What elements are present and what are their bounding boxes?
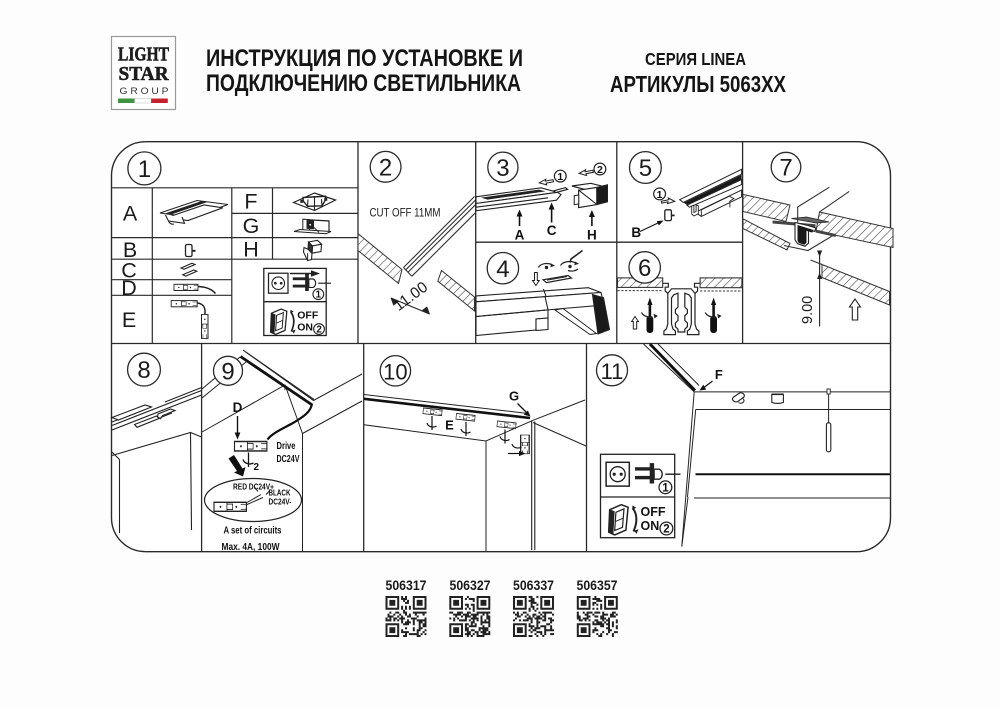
svg-text:6: 6 <box>638 255 651 282</box>
svg-text:F: F <box>244 190 257 214</box>
svg-text:G R O U P: G R O U P <box>120 86 169 97</box>
svg-text:1: 1 <box>557 171 563 183</box>
svg-text:DC24V-: DC24V- <box>269 497 292 507</box>
svg-text:4: 4 <box>496 256 509 283</box>
svg-text:CUT OFF 11MM: CUT OFF 11MM <box>370 206 441 220</box>
svg-text:A: A <box>515 228 525 243</box>
svg-text:G: G <box>509 389 519 404</box>
svg-text:ПОДКЛЮЧЕНИЮ СВЕТИЛЬНИКА: ПОДКЛЮЧЕНИЮ СВЕТИЛЬНИКА <box>206 70 521 97</box>
svg-text:5: 5 <box>639 155 652 182</box>
svg-text:9.00: 9.00 <box>800 296 816 324</box>
svg-text:СЕРИЯ LINEA: СЕРИЯ LINEA <box>645 49 746 69</box>
svg-text:7: 7 <box>779 155 792 182</box>
svg-text:1: 1 <box>657 189 663 201</box>
svg-text:506337: 506337 <box>513 578 554 593</box>
svg-text:9: 9 <box>221 358 234 385</box>
svg-text:E: E <box>122 308 136 332</box>
svg-text:E: E <box>445 418 454 433</box>
svg-text:C: C <box>547 223 557 238</box>
svg-text:Max. 4A, 100W: Max. 4A, 100W <box>222 542 280 553</box>
svg-text:3: 3 <box>496 155 509 182</box>
svg-text:АРТИКУЛЫ 5063ХХ: АРТИКУЛЫ 5063ХХ <box>610 71 787 97</box>
svg-text:H: H <box>243 238 259 262</box>
svg-text:D: D <box>121 276 137 300</box>
svg-text:ИНСТРУКЦИЯ ПО УСТАНОВКЕ И: ИНСТРУКЦИЯ ПО УСТАНОВКЕ И <box>206 45 523 72</box>
svg-text:10: 10 <box>383 359 407 384</box>
svg-text:506357: 506357 <box>577 578 618 593</box>
svg-text:Drive: Drive <box>277 441 296 452</box>
svg-text:D: D <box>233 400 243 415</box>
svg-text:2: 2 <box>597 164 603 176</box>
svg-text:11: 11 <box>601 359 624 384</box>
svg-text:A set of circuits: A set of circuits <box>224 526 282 537</box>
svg-text:LIGHT: LIGHT <box>118 45 169 66</box>
svg-text:F: F <box>715 367 723 382</box>
svg-text:G: G <box>243 214 260 238</box>
svg-text:A: A <box>123 202 138 226</box>
svg-text:STAR: STAR <box>119 64 170 85</box>
svg-text:2: 2 <box>379 154 392 181</box>
svg-text:DC24V: DC24V <box>277 454 300 465</box>
svg-text:506327: 506327 <box>450 578 491 593</box>
svg-text:B: B <box>631 225 641 240</box>
svg-text:506317: 506317 <box>386 578 427 593</box>
svg-text:8: 8 <box>137 357 150 384</box>
svg-text:H: H <box>587 228 597 243</box>
svg-text:2: 2 <box>254 462 260 473</box>
svg-text:1: 1 <box>138 156 151 183</box>
